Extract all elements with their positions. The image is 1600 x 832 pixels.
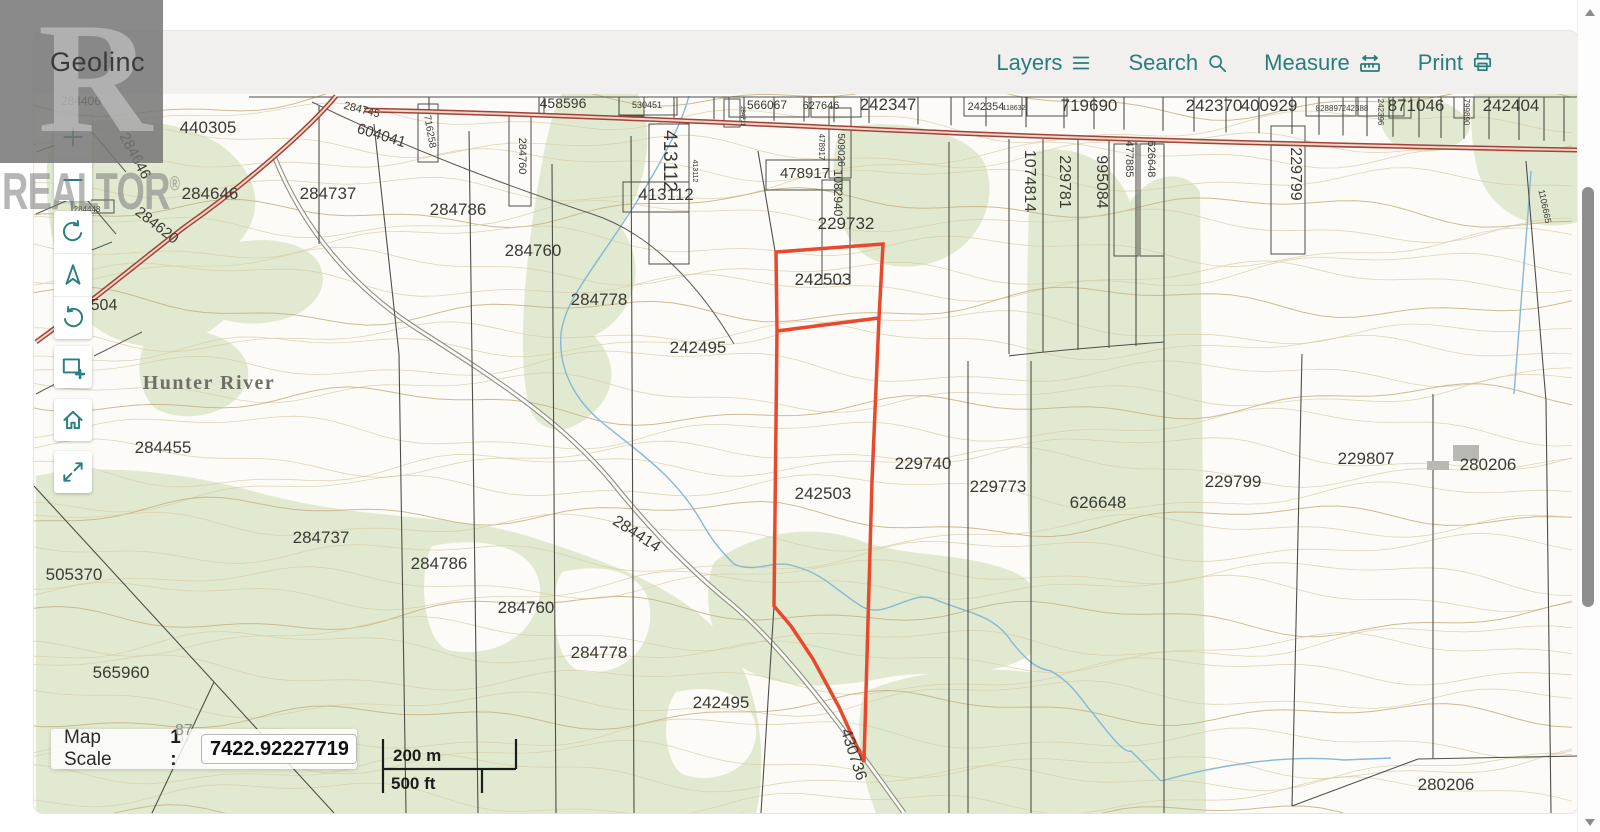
measure-menu-item[interactable]: Measure [1264, 50, 1382, 76]
printer-icon [1471, 51, 1494, 74]
map-scale-panel: Map Scale 1 : 87 [51, 729, 357, 769]
parcel-label: 280206 [1418, 775, 1475, 794]
rotate-toolbar [54, 211, 92, 339]
parcel-label: 229732 [818, 214, 875, 233]
rotate-cw-icon [60, 219, 86, 245]
parcel-label: 413112 [659, 130, 680, 192]
parcel-label: 284737 [300, 184, 357, 203]
home-toolbar [54, 399, 92, 441]
layers-label: Layers [996, 50, 1062, 76]
app-header: Geolinc Layers Search Measure Pr [34, 31, 1578, 95]
zoom-box-icon [60, 354, 86, 380]
parcel-label: 242354 [968, 101, 1005, 113]
parcel-label: 229781 [1056, 155, 1073, 208]
search-menu-item[interactable]: Search [1128, 50, 1228, 76]
parcel-label: 413112 [691, 160, 698, 183]
search-label: Search [1128, 50, 1198, 76]
parcel-label: 284760 [516, 138, 528, 175]
parcel-label: 284760 [505, 241, 562, 260]
parcel-label: 626648 [1070, 493, 1127, 512]
map-canvas[interactable]: 2844068928464628444828462050444030528464… [34, 94, 1578, 813]
main-menu: Layers Search Measure Print [996, 31, 1494, 94]
minus-icon [60, 167, 86, 193]
list-icon [1070, 52, 1092, 74]
parcel-label: 242503 [795, 484, 852, 503]
north-arrow-icon [60, 262, 86, 288]
scale-bar: 200 m 500 ft [379, 731, 529, 811]
parcel-label: 995084 [1093, 155, 1110, 208]
rotate-counterclockwise-button[interactable] [54, 296, 92, 339]
zoom-box-button[interactable] [54, 346, 92, 388]
plus-icon [60, 124, 86, 150]
parcel-label: 229799 [1205, 472, 1262, 491]
scroll-up-arrow[interactable] [1585, 9, 1595, 16]
parcel-label: 284406 [61, 94, 101, 108]
parcel-label: 242503 [795, 270, 852, 289]
geolinc-app-window: Geolinc Layers Search Measure Pr [33, 30, 1579, 814]
print-menu-item[interactable]: Print [1418, 50, 1494, 76]
rotate-ccw-icon [60, 305, 86, 331]
map-scale-input[interactable] [201, 734, 357, 764]
parcel-label: 566067 [747, 98, 787, 112]
search-icon [1206, 52, 1228, 74]
scroll-down-arrow[interactable] [1585, 819, 1595, 826]
home-icon [60, 407, 86, 433]
print-label: Print [1418, 50, 1463, 76]
parcel-label: 284455 [135, 438, 192, 457]
app-title: Geolinc [50, 47, 145, 78]
ruler-icon [1358, 51, 1382, 75]
parcel-label: 242495 [670, 338, 727, 357]
north-arrow-button[interactable] [54, 253, 92, 296]
parcel-label: 477885 [1123, 141, 1135, 178]
parcel-label: 242347 [860, 95, 917, 114]
fullscreen-button[interactable] [54, 451, 92, 493]
parcel-label: 118632 [1003, 105, 1026, 112]
parcel-label: 530451 [632, 100, 662, 110]
parcel-label: 280206 [1460, 455, 1517, 474]
parcel-label: 478917 [817, 134, 826, 161]
parcel-label: 458596 [540, 95, 587, 111]
parcel-label: 626648 [1145, 141, 1157, 178]
rotate-clockwise-button[interactable] [54, 211, 92, 253]
parcel-label: 284737 [293, 528, 350, 547]
parcel-label: 627646 [803, 100, 840, 112]
vertical-scrollbar[interactable] [1577, 0, 1600, 832]
expand-icon [60, 459, 86, 485]
place-name-label: Hunter River [143, 372, 276, 394]
parcel-label: 284778 [571, 643, 628, 662]
parcel-label: 284778 [571, 290, 628, 309]
home-button[interactable] [54, 399, 92, 441]
parcel-label: 504 [91, 297, 118, 314]
parcel-label: 242388 [1342, 104, 1369, 113]
zoom-toolbar [54, 116, 92, 201]
parcel-label: 1082940 [831, 170, 845, 217]
parcel-label: 565960 [93, 663, 150, 682]
fullscreen-toolbar [54, 451, 92, 493]
parcel-label: 284711 [739, 106, 745, 126]
measure-label: Measure [1264, 50, 1350, 76]
parcel-label: 242404 [1483, 96, 1540, 115]
obscured-parcel-label: 87 [175, 722, 193, 740]
zoom-in-button[interactable] [54, 116, 92, 158]
map-scale-label: Map Scale [64, 727, 148, 771]
parcel-label: 871046 [1388, 96, 1445, 115]
parcel-label: 242495 [693, 693, 750, 712]
parcel-label: 400929 [1241, 96, 1298, 115]
parcel-label: 505370 [46, 565, 103, 584]
parcel-label: 509026 [835, 133, 846, 167]
parcel-label: 242396 [1376, 99, 1385, 126]
parcel-label: 828897 [1316, 104, 1343, 113]
parcel-label: 284760 [498, 598, 555, 617]
parcel-label: 799890 [1462, 99, 1471, 126]
select-toolbar [54, 346, 92, 388]
parcel-label: 242370 [1186, 96, 1243, 115]
scrollbar-thumb[interactable] [1582, 187, 1594, 607]
parcel-label: 719690 [1061, 96, 1118, 115]
parcel-label: 229807 [1338, 449, 1395, 468]
zoom-out-button[interactable] [54, 158, 92, 201]
parcel-label: 440305 [180, 118, 237, 137]
scale-bar-metric: 200 m [393, 746, 441, 765]
parcel-label: 478917 [780, 165, 830, 182]
parcel-label: 229773 [970, 477, 1027, 496]
parcel-label: 229740 [895, 454, 952, 473]
parcel-label: 284786 [430, 200, 487, 219]
parcel-label: 1074814 [1021, 150, 1038, 212]
parcel-label: 284646 [182, 184, 239, 203]
layers-menu-item[interactable]: Layers [996, 50, 1092, 76]
parcel-label: 284786 [411, 554, 468, 573]
parcel-label: 229799 [1287, 147, 1304, 200]
parcel-label: 413112 [638, 185, 693, 204]
scale-bar-imperial: 500 ft [391, 774, 436, 793]
